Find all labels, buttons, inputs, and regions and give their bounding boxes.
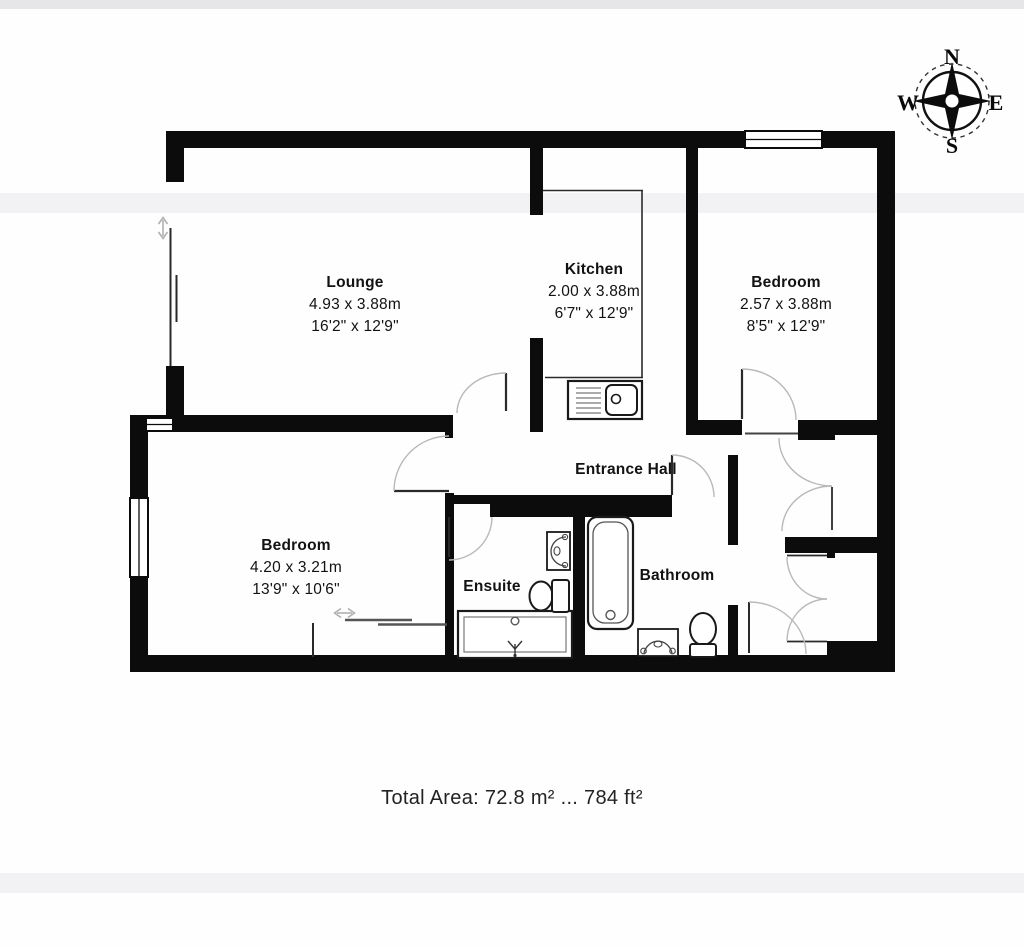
wall-lounge-bottom (148, 415, 453, 432)
window-top (745, 131, 822, 148)
wall-lounge-kitchen-lower (530, 338, 543, 432)
bathroom-toilet (690, 613, 716, 657)
bedroom-wardrobe (313, 609, 447, 658)
room-label-bedroom-top: Bedroom 2.57 x 3.88m 8'5" x 12'9" (696, 272, 876, 338)
room-name: Ensuite (442, 576, 542, 598)
wall-left-lounge-upper (166, 131, 184, 182)
compass-north-label: N (944, 44, 960, 70)
wall-bathroom-right-upper (728, 455, 738, 545)
room-name: Lounge (245, 272, 465, 294)
wall-stub (445, 432, 453, 438)
wall-cupboard-step (827, 553, 835, 558)
room-dim-imperial: 13'9" x 10'6" (206, 579, 386, 601)
room-dim-metric: 2.57 x 3.88m (696, 294, 876, 316)
bathroom-basin (638, 629, 678, 656)
windows (130, 131, 822, 577)
room-dim-metric: 4.20 x 3.21m (206, 557, 386, 579)
door-hall-lower (749, 602, 806, 654)
ensuite-basin (547, 532, 570, 570)
wall-ensuite-bathroom (573, 517, 585, 655)
room-name: Kitchen (504, 259, 684, 281)
room-label-ensuite: Ensuite (442, 576, 542, 598)
compass-south-label: S (946, 133, 958, 159)
patio-slider (159, 218, 177, 367)
ensuite-shower (458, 611, 572, 658)
compass-west-label: W (897, 90, 919, 116)
room-label-kitchen: Kitchen 2.00 x 3.88m 6'7" x 12'9" (504, 259, 684, 325)
door-cupboard-upper (779, 438, 832, 531)
room-name: Entrance Hall (536, 459, 716, 481)
wardrobe-arrow-icon (335, 609, 355, 618)
wall-lounge-kitchen-upper (530, 148, 543, 215)
wall-bedroom-top-bottom-left (686, 420, 742, 435)
room-label-bathroom: Bathroom (617, 565, 737, 587)
door-cupboard-lower (787, 556, 827, 642)
door-bedroom-top (742, 369, 798, 434)
room-label-lounge: Lounge 4.93 x 3.88m 16'2" x 12'9" (245, 272, 465, 338)
wall-cupboard-top (785, 537, 877, 553)
window-left (130, 498, 148, 577)
room-name: Bedroom (696, 272, 876, 294)
door-bedroom-left (394, 436, 449, 491)
compass-east-label: E (989, 90, 1004, 116)
room-dim-imperial: 8'5" x 12'9" (696, 316, 876, 338)
wall-cupboard-bottom (827, 641, 877, 657)
room-dim-imperial: 6'7" x 12'9" (504, 303, 684, 325)
wall-hall-bath (490, 495, 672, 517)
compass-rose (913, 62, 991, 140)
room-dim-imperial: 16'2" x 12'9" (245, 316, 465, 338)
wall-notch (798, 432, 835, 440)
wall-bathroom-right-lower (728, 605, 738, 655)
wall-right (877, 131, 895, 672)
door-ensuite (449, 517, 492, 560)
room-label-entrance-hall: Entrance Hall (536, 459, 716, 481)
room-name: Bathroom (617, 565, 737, 587)
room-dim-metric: 2.00 x 3.88m (504, 281, 684, 303)
room-name: Bedroom (206, 535, 386, 557)
room-label-bedroom-left: Bedroom 4.20 x 3.21m 13'9" x 10'6" (206, 535, 386, 601)
door-lounge (457, 373, 506, 413)
total-area-caption: Total Area: 72.8 m² ... 784 ft² (0, 787, 1024, 810)
window-small-corner (146, 418, 173, 431)
floorplan-page: Lounge 4.93 x 3.88m 16'2" x 12'9" Kitche… (0, 0, 1024, 948)
slider-arrow-icon (159, 218, 168, 239)
room-dim-metric: 4.93 x 3.88m (245, 294, 465, 316)
kitchen-sink (568, 381, 642, 419)
